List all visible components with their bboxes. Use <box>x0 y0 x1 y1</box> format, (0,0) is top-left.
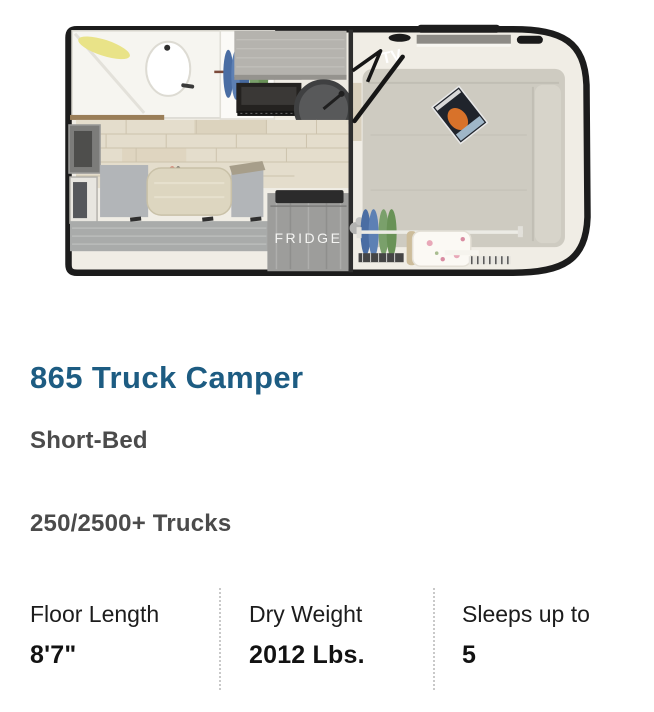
dinette-bench-left <box>100 165 148 217</box>
dinette-table <box>147 168 231 215</box>
spec-label: Sleeps up to <box>462 601 626 628</box>
spec-value: 2012 Lbs. <box>249 641 433 670</box>
spec-sleeps: Sleeps up to 5 <box>433 588 626 690</box>
spec-label: Floor Length <box>30 601 219 628</box>
spec-value: 5 <box>462 641 626 670</box>
fridge: FRIDGE <box>267 190 348 271</box>
cooktop-oven <box>236 83 301 116</box>
wire-shelf <box>359 253 404 262</box>
bed-pillow <box>407 231 471 266</box>
page-title[interactable]: 865 Truck Camper <box>30 360 304 396</box>
divider-wall <box>349 30 354 272</box>
bathroom <box>70 31 220 120</box>
cabinet-door <box>70 177 97 223</box>
specs-row: Floor Length 8'7" Dry Weight 2012 Lbs. S… <box>30 588 626 690</box>
bathroom-shelf <box>70 115 164 120</box>
spec-dry-weight: Dry Weight 2012 Lbs. <box>219 588 433 690</box>
fridge-label: FRIDGE <box>274 230 342 246</box>
spec-label: Dry Weight <box>249 601 433 628</box>
spec-floor-length: Floor Length 8'7" <box>30 588 219 690</box>
white-step <box>445 250 479 255</box>
bed-type-heading: Short-Bed <box>30 427 148 455</box>
floor-vent <box>469 256 511 264</box>
overhead-cabinet <box>234 31 346 80</box>
microwave <box>69 125 100 173</box>
spec-value: 8'7" <box>30 641 219 670</box>
camper-card: FRIDGE TV <box>0 0 654 712</box>
roof-vent-exterior <box>418 25 500 33</box>
bench-seat-long <box>70 217 268 252</box>
dinette <box>100 161 265 217</box>
truck-type-heading: 250/2500+ Trucks <box>30 510 231 538</box>
fridge-top-slab <box>275 190 343 203</box>
dinette-bench-right <box>231 167 263 217</box>
floorplan-svg: FRIDGE TV <box>64 24 592 278</box>
floorplan-image[interactable]: FRIDGE TV <box>64 24 592 278</box>
